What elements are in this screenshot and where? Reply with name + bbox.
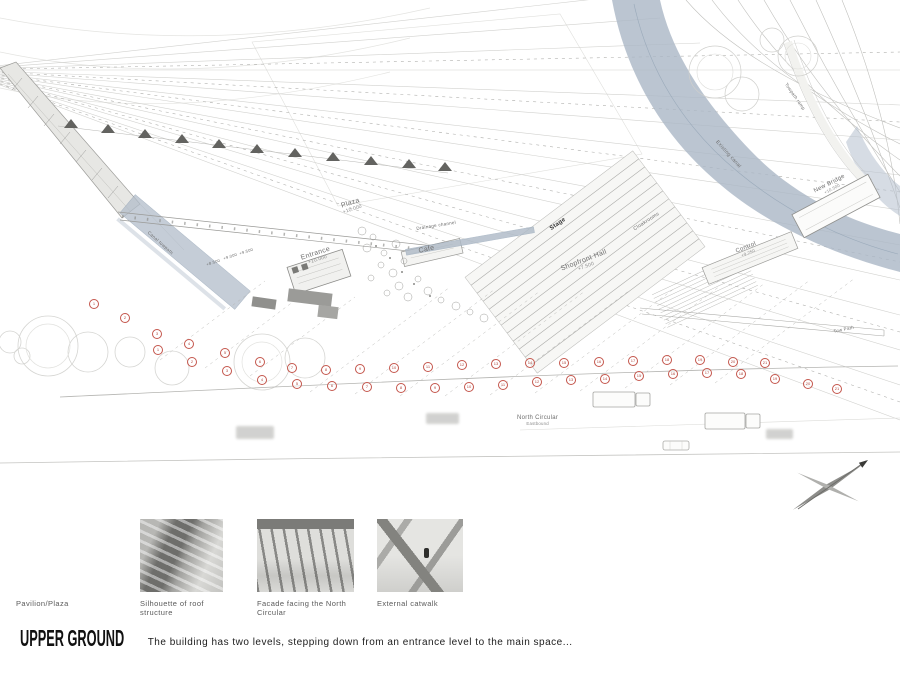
grid-marker: 14 — [525, 358, 535, 368]
thumbnail-pavilion-plaza: Pavilion/Plaza — [16, 519, 120, 608]
grid-marker: 15 — [559, 358, 569, 368]
grid-marker: 21 — [832, 384, 842, 394]
grid-marker: 17 — [702, 368, 712, 378]
blurred-vehicle — [426, 413, 459, 424]
grid-marker: 16 — [668, 369, 678, 379]
grid-marker: 7 — [362, 382, 372, 392]
grid-marker: 12 — [532, 377, 542, 387]
grid-marker: 13 — [566, 375, 576, 385]
thumbnail-caption: Facade facing the North Circular — [257, 599, 354, 617]
grid-marker: 18 — [662, 355, 672, 365]
presentation-board: Plaza +10.000 Entrance +10.000 Cafe Drai… — [0, 0, 900, 675]
grid-marker: 15 — [634, 371, 644, 381]
grid-marker: 2 — [120, 313, 130, 323]
grid-marker: 9 — [430, 383, 440, 393]
upper-ground-site-plan: Plaza +10.000 Entrance +10.000 Cafe Drai… — [0, 0, 900, 512]
grid-marker: 11 — [498, 380, 508, 390]
grid-marker: 19 — [770, 374, 780, 384]
blurred-vehicle — [766, 429, 793, 439]
model-photo-pavilion — [16, 519, 120, 592]
vehicles — [593, 392, 760, 450]
grid-marker: 10 — [389, 363, 399, 373]
grid-marker: 16 — [594, 357, 604, 367]
control-block — [702, 232, 798, 285]
grid-marker: 20 — [728, 357, 738, 367]
grid-marker: 8 — [396, 383, 406, 393]
title-block: UPPER GROUND The building has two levels… — [20, 628, 573, 650]
grid-marker: 14 — [600, 374, 610, 384]
grid-marker: 3 — [152, 329, 162, 339]
rooflight-triangles — [58, 119, 452, 173]
thumbnail-caption: External catwalk — [377, 599, 463, 608]
grid-marker: 6 — [255, 357, 265, 367]
roof-fan-dashed — [0, 52, 900, 402]
grid-marker: 5 — [220, 348, 230, 358]
north-arrow-icon — [791, 460, 868, 512]
grid-marker: 7 — [287, 363, 297, 373]
thumbnail-caption: Silhouette of roof structure — [140, 599, 223, 617]
grid-marker: 13 — [491, 359, 501, 369]
grid-marker: 17 — [628, 356, 638, 366]
grid-marker: 11 — [423, 362, 433, 372]
grid-marker: 3 — [222, 366, 232, 376]
grid-marker: 12 — [457, 360, 467, 370]
lower-level-shapes — [251, 288, 338, 319]
grid-marker: 9 — [355, 364, 365, 374]
thumbnail-catwalk: External catwalk — [377, 519, 463, 608]
thumbnail-roof-silhouette: Silhouette of roof structure — [140, 519, 223, 617]
grid-marker: 4 — [257, 375, 267, 385]
model-photo-catwalk — [377, 519, 463, 592]
thumbnail-facade: Facade facing the North Circular — [257, 519, 354, 617]
grid-marker: 1 — [89, 299, 99, 309]
thumbnail-caption: Pavilion/Plaza — [16, 599, 120, 608]
plan-label: North Circular Eastbound — [517, 415, 558, 427]
grid-marker: 10 — [464, 382, 474, 392]
site-plan-drawing — [0, 0, 900, 512]
blurred-vehicle — [236, 426, 274, 439]
grid-marker: 18 — [736, 369, 746, 379]
model-photo-facade — [257, 519, 354, 592]
page-title: UPPER GROUND — [20, 627, 124, 650]
grid-marker: 4 — [184, 339, 194, 349]
grid-marker: 8 — [321, 365, 331, 375]
grid-marker: 5 — [292, 379, 302, 389]
grid-marker: 20 — [803, 379, 813, 389]
grid-marker: 1 — [153, 345, 163, 355]
model-photo-roof — [140, 519, 223, 592]
edge-strip — [640, 308, 884, 336]
grid-marker: 19 — [695, 355, 705, 365]
page-description: The building has two levels, stepping do… — [148, 637, 573, 648]
grid-marker: 6 — [327, 381, 337, 391]
grid-marker: 21 — [760, 358, 770, 368]
grid-marker: 2 — [187, 357, 197, 367]
